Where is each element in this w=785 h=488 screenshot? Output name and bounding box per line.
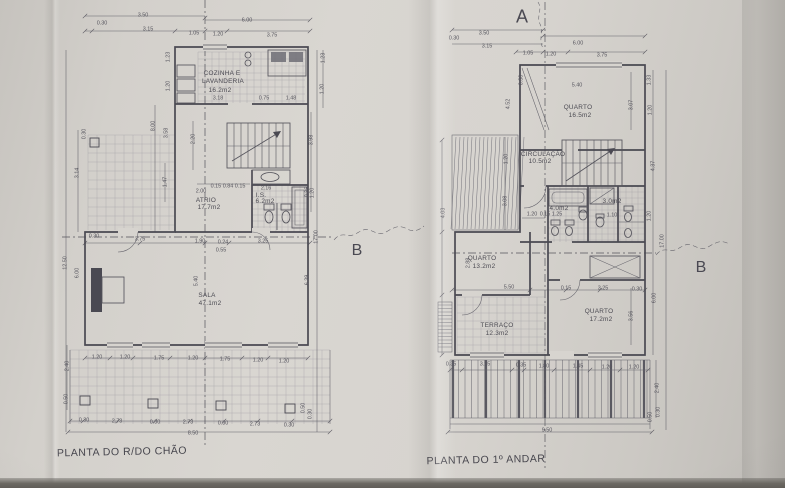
- dim-label: 0.35: [446, 361, 457, 367]
- dim-label: 0.35: [516, 362, 527, 368]
- dim-label: 6.00: [242, 17, 253, 23]
- dim-label: 0.30: [89, 233, 100, 239]
- dim-label: 3.50: [138, 12, 149, 18]
- dim-label: 0.24: [218, 239, 229, 245]
- dim-label: 5.40: [193, 276, 199, 287]
- dim-label: 3.50: [479, 30, 490, 36]
- dim-label: 0.15: [561, 285, 572, 291]
- dim-label: 12.50: [62, 256, 68, 270]
- dim-label: 1.05: [523, 50, 534, 56]
- room-area-cozinha: 16.2m2: [209, 86, 232, 93]
- room-label-quarto-norte: QUARTO: [564, 103, 593, 110]
- dim-label: 3.07: [628, 100, 634, 111]
- dim-label: 1.90: [195, 238, 206, 244]
- dim-label: 9.50: [542, 427, 553, 433]
- dim-label: 0.30: [150, 419, 161, 425]
- dim-label: 17.00: [659, 234, 665, 248]
- room-label-cozinha-line1: COZINHA E: [204, 69, 241, 76]
- room-label-terraco: TERRAÇO: [481, 321, 514, 328]
- dim-label: 0.15 0.84 0.15: [211, 183, 246, 189]
- dim-label: 3.98: [308, 135, 314, 146]
- room-area-quarto-sul: 17.2m2: [590, 315, 613, 322]
- dim-label: 0.15: [540, 211, 551, 217]
- plan-title-ground-floor: PLANTA DO R/DO CHÃO: [57, 445, 187, 460]
- dim-label: 2.16: [261, 185, 272, 191]
- dim-label: 1.20: [646, 211, 652, 222]
- dim-label: 3.75: [135, 236, 146, 242]
- dim-label: 3.58: [163, 128, 169, 139]
- dim-label: 4.37: [650, 161, 656, 172]
- dim-label: 17.00: [313, 230, 319, 244]
- dim-label: 1.75: [154, 355, 165, 361]
- dim-label: 2.73: [183, 419, 194, 425]
- dim-label: 0.30: [307, 409, 313, 420]
- room-area-is: 6.2m2: [256, 197, 275, 204]
- dim-label: 1.20: [165, 81, 171, 92]
- dim-label: 0.55: [216, 247, 227, 253]
- dim-label: 1.20: [602, 364, 613, 370]
- dim-label: 5.40: [572, 82, 583, 88]
- dim-label: 3.75: [597, 52, 608, 58]
- dim-label: 1.20: [253, 357, 264, 363]
- dim-label: 0.50: [647, 412, 653, 423]
- dim-label: 1.20: [309, 188, 315, 199]
- dim-label: 1.47: [162, 177, 168, 188]
- dim-label: 0.30: [79, 417, 90, 423]
- dim-label: 2.73: [250, 421, 261, 427]
- dim-label: 1.20: [279, 358, 290, 364]
- dim-label: 3.25: [598, 285, 609, 291]
- dim-label: 0.30: [284, 422, 295, 428]
- dim-label: 4.03: [440, 208, 446, 219]
- dim-label: 3.14: [74, 168, 80, 179]
- dim-label: 1.20: [319, 84, 325, 95]
- section-marker-b-right: B: [696, 259, 707, 277]
- dim-label: 3.15: [482, 43, 493, 49]
- room-area-quarto-norte: 16.5m2: [569, 111, 592, 118]
- room-label-quarto-oeste: QUARTO: [468, 254, 497, 261]
- dim-label: 1.05: [189, 30, 200, 36]
- dim-label: 2.20: [190, 134, 196, 145]
- dim-label: 1.20: [92, 354, 103, 360]
- dim-label: 6.39: [304, 275, 310, 286]
- dim-label: 0.30: [655, 407, 661, 418]
- dim-label: 6.00: [74, 268, 80, 279]
- dim-label: 5.50: [504, 284, 515, 290]
- dim-label: 0.30: [518, 75, 524, 86]
- room-area-is-1: 4.0m2: [550, 204, 569, 211]
- section-marker-b-left: B: [352, 242, 363, 260]
- dim-label: 0.30: [632, 286, 643, 292]
- dim-label: 0.30: [449, 35, 460, 41]
- dim-label: 1.25: [552, 211, 563, 217]
- dim-label: 1.45: [573, 363, 584, 369]
- room-area-terraco: 12.3m2: [486, 329, 509, 336]
- dim-label: 2.73: [112, 418, 123, 424]
- dim-label: 1.75: [220, 356, 231, 362]
- room-area-is-2: 3.0m2: [603, 197, 622, 204]
- dim-label: 3.56: [628, 311, 634, 322]
- room-label-cozinha-line2: LAVANDERIA: [202, 77, 244, 84]
- dim-label: 0.50: [300, 403, 306, 414]
- section-marker-a: A: [516, 7, 528, 28]
- dim-label: 1.80: [539, 363, 550, 369]
- dim-label: 3.15: [143, 26, 154, 32]
- dim-label: 6.00: [573, 40, 584, 46]
- dim-label: 0.75: [259, 95, 270, 101]
- dim-label: 1.20: [503, 154, 509, 165]
- dim-label: 2.40: [64, 361, 70, 372]
- dim-label: 2.40: [654, 383, 660, 394]
- dim-label: 2.00: [196, 188, 207, 194]
- room-area-circulacao: 10.5m2: [529, 157, 552, 164]
- dim-label: 1.23: [320, 53, 326, 64]
- dim-label: 8.00: [150, 121, 156, 132]
- dim-label: 1.33: [646, 75, 652, 86]
- dim-label: 6.00: [651, 293, 657, 304]
- dim-label: 3.18: [213, 95, 224, 101]
- dim-label: 0.30: [218, 420, 229, 426]
- annotation-layer: 3.50 0.30 3.15 6.00 1.05 1.20 3.75 1.23 …: [0, 0, 785, 488]
- dim-label: 8.50: [188, 430, 199, 436]
- dim-label: 1.20: [647, 105, 653, 116]
- dim-label: 3.08: [502, 196, 508, 207]
- dim-label: 1.20: [213, 31, 224, 37]
- dim-label: 4.52: [505, 99, 511, 110]
- room-label-sala: SALA: [198, 291, 215, 298]
- room-area-sala: 47.1m2: [199, 299, 222, 306]
- dim-label: 3.25: [258, 238, 269, 244]
- dim-label: 1.48: [286, 95, 297, 101]
- dim-label: 1.20: [527, 211, 538, 217]
- dim-label: 3.15: [480, 361, 491, 367]
- dim-label: 1.20: [629, 364, 640, 370]
- dim-label: 3.75: [267, 32, 278, 38]
- dim-label: 1.20: [546, 51, 557, 57]
- dim-label: 0.30: [81, 129, 87, 140]
- dim-label: 0.30: [97, 20, 108, 26]
- room-area-quarto-oeste: 13.2m2: [473, 262, 496, 269]
- plan-title-first-floor: PLANTA DO 1º ANDAR: [426, 453, 545, 467]
- photo-of-floorplans: 3.50 0.30 3.15 6.00 1.05 1.20 3.75 1.23 …: [0, 0, 785, 488]
- room-area-atrio: 17.7m2: [198, 203, 221, 210]
- dim-label: 1.10: [607, 212, 618, 218]
- dim-label: 1.23: [165, 52, 171, 63]
- dim-label: 0.50: [63, 394, 69, 405]
- dim-label: 1.20: [188, 355, 199, 361]
- room-label-quarto-sul: QUARTO: [585, 307, 614, 314]
- dim-label: 1.20: [120, 354, 131, 360]
